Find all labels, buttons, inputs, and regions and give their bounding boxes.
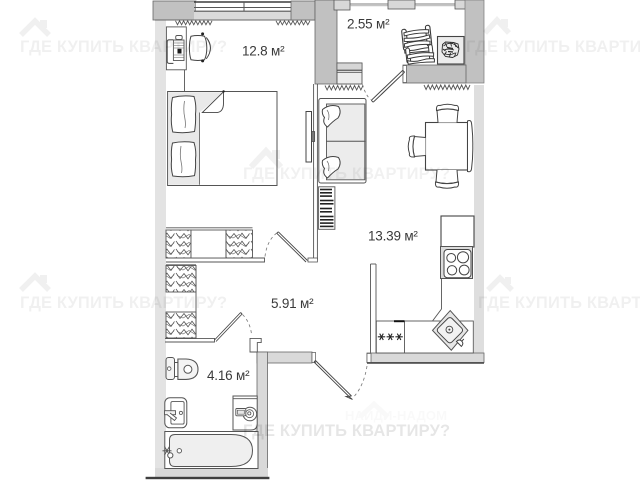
svg-text:ГДЕ КУПИТЬ КВАРТИРУ?: ГДЕ КУПИТЬ КВАРТИРУ? (243, 165, 450, 183)
svg-text:13.39 м²: 13.39 м² (368, 229, 418, 244)
svg-text:ГДЕ КУПИТЬ КВАРТИРУ?: ГДЕ КУПИТЬ КВАРТИРУ? (478, 294, 640, 312)
svg-text:НАЙДИ-НАДОМ: НАЙДИ-НАДОМ (345, 408, 447, 423)
svg-text:ГДЕ КУПИТЬ КВАРТИРУ?: ГДЕ КУПИТЬ КВАРТИРУ? (243, 422, 450, 440)
svg-text:2.55 м²: 2.55 м² (347, 17, 390, 32)
svg-text:ГДЕ КУПИТЬ КВАРТИРУ?: ГДЕ КУПИТЬ КВАРТИРУ? (20, 294, 227, 312)
svg-text:4.16 м²: 4.16 м² (207, 368, 250, 383)
svg-text:5.91 м²: 5.91 м² (271, 296, 314, 311)
svg-text:ГДЕ КУПИТЬ КВАРТИРУ?: ГДЕ КУПИТЬ КВАРТИРУ? (20, 38, 227, 56)
svg-text:12.8 м²: 12.8 м² (242, 44, 285, 59)
svg-text:ГДЕ КУПИТЬ КВАРТИРУ?: ГДЕ КУПИТЬ КВАРТИРУ? (466, 38, 640, 56)
